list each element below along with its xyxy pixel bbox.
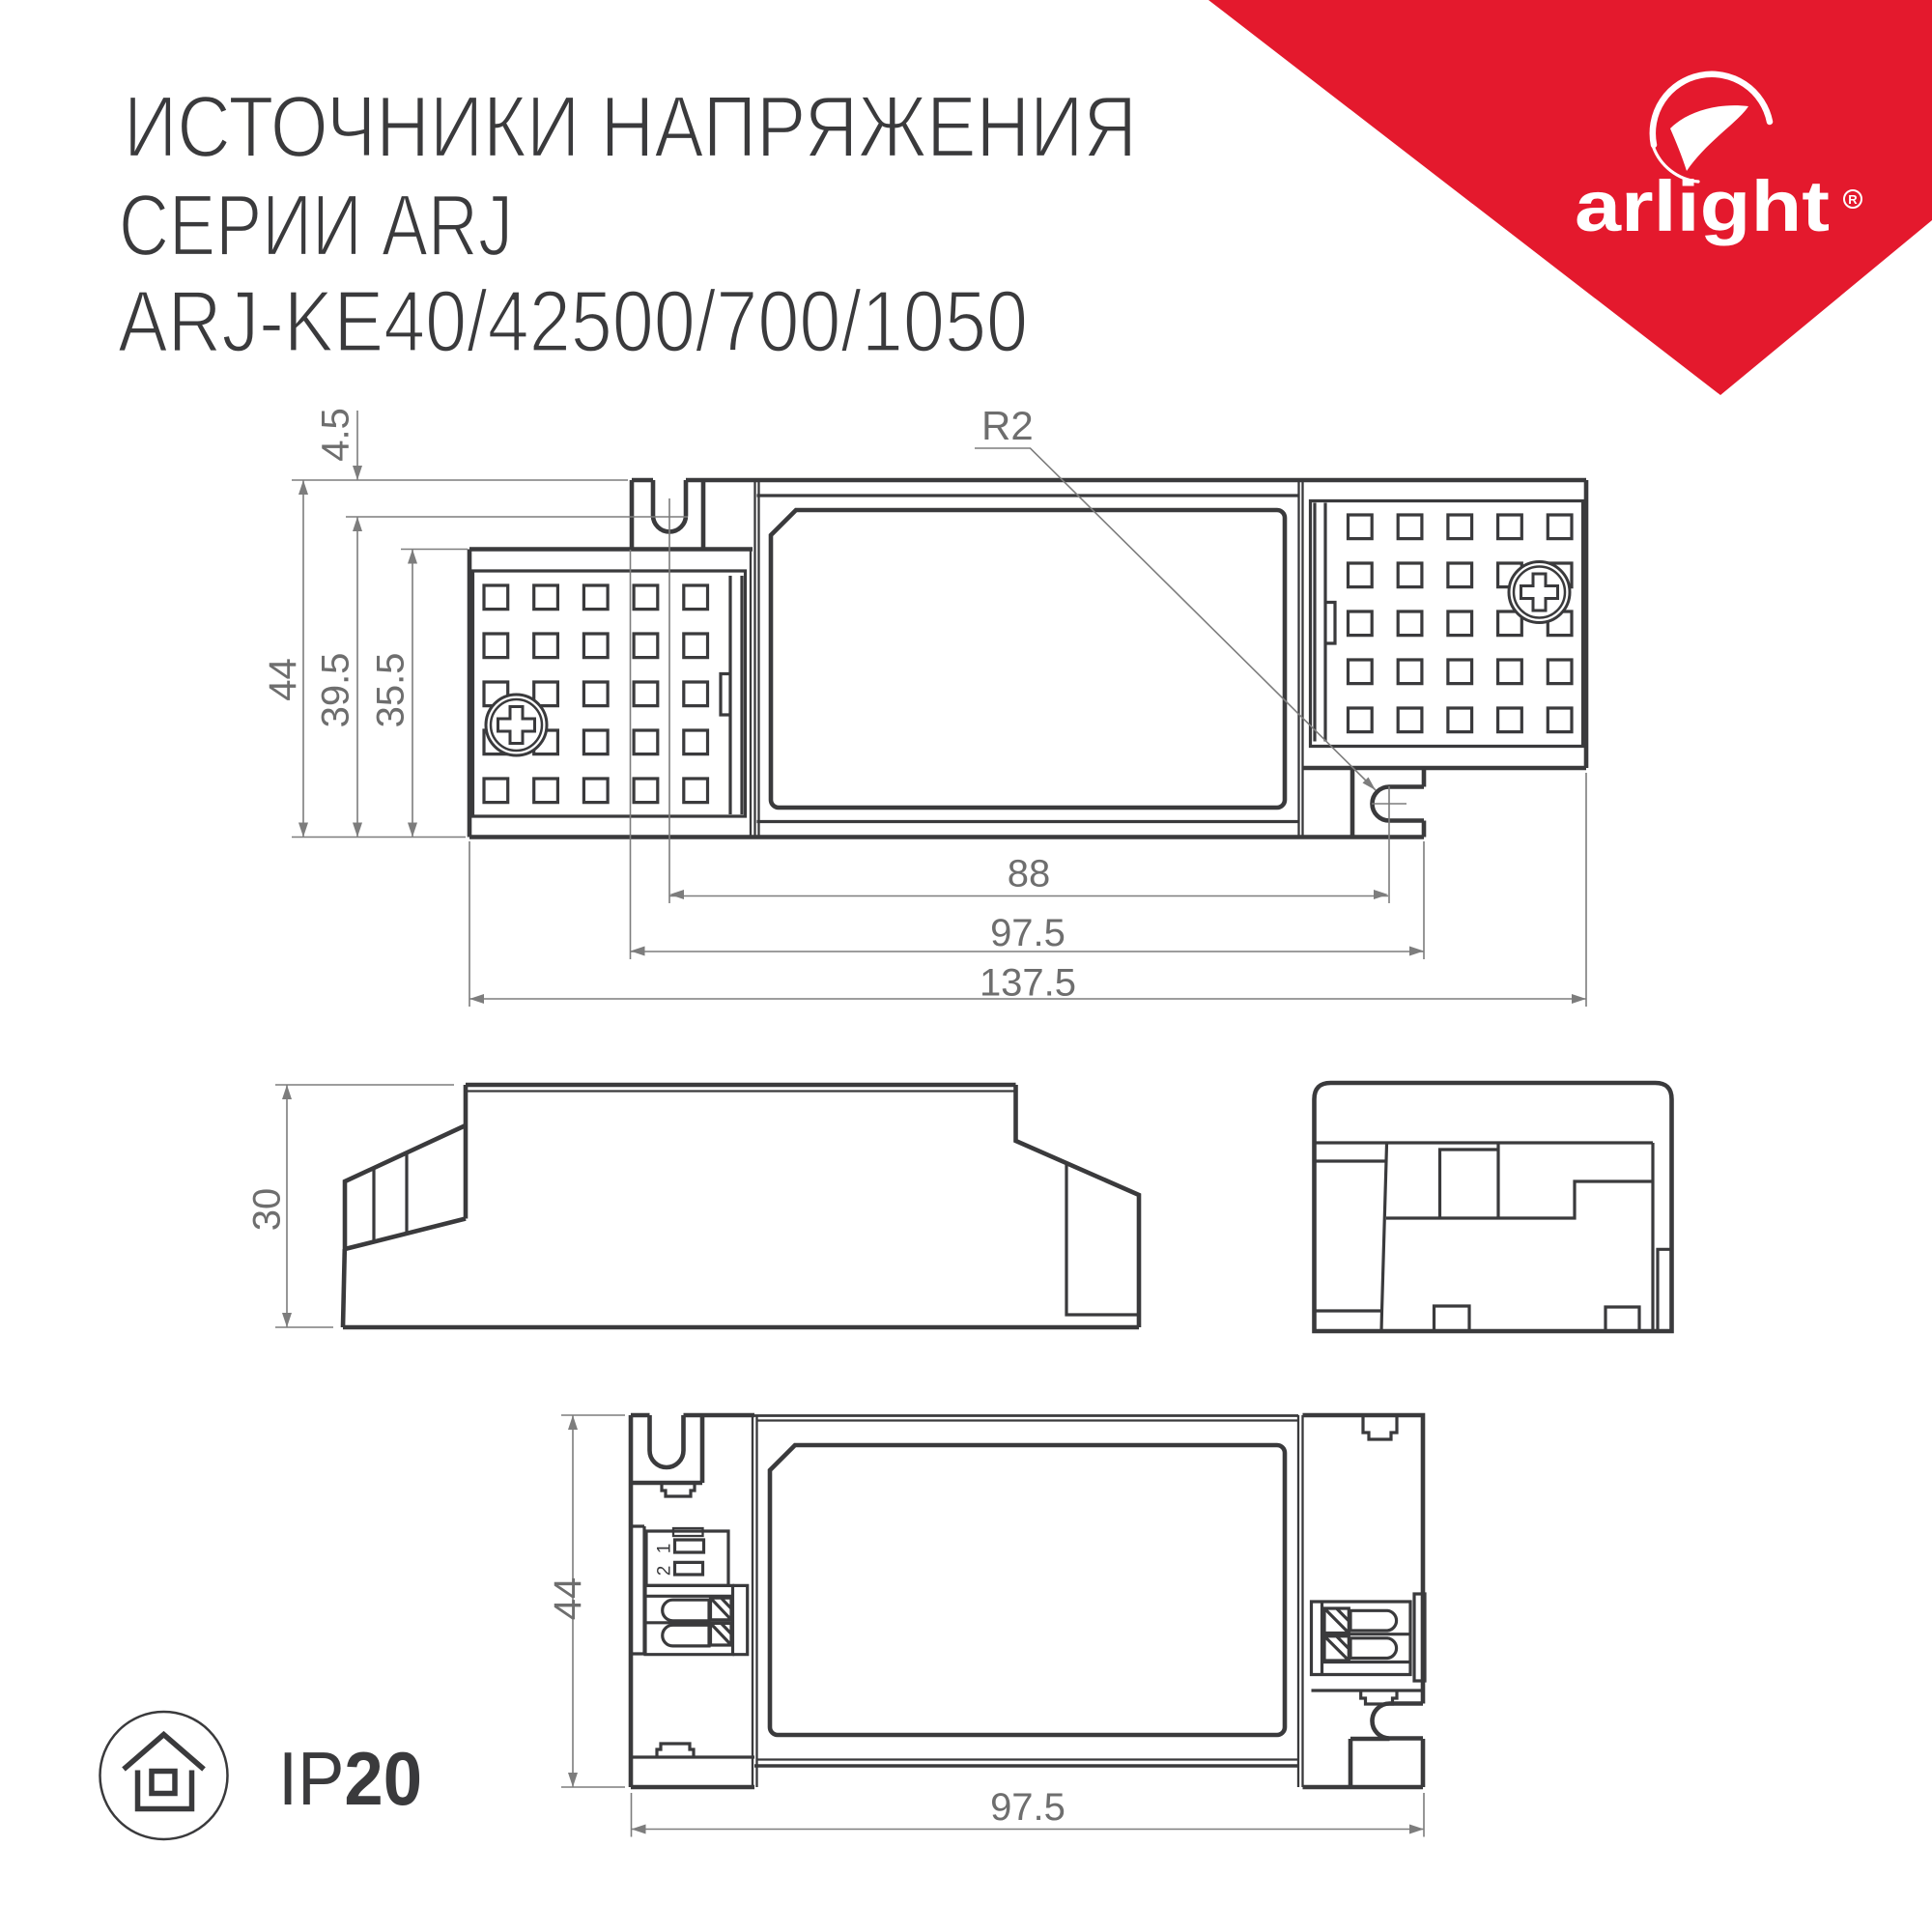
svg-text:ARJ-KE40/42500/700/1050: ARJ-KE40/42500/700/1050 xyxy=(118,274,1028,371)
svg-text:30: 30 xyxy=(246,1188,289,1232)
svg-text:97.5: 97.5 xyxy=(990,912,1065,954)
svg-text:4.5: 4.5 xyxy=(315,408,357,462)
svg-text:R: R xyxy=(1848,192,1858,207)
svg-text:ИСТОЧНИКИ НАПРЯЖЕНИЯ: ИСТОЧНИКИ НАПРЯЖЕНИЯ xyxy=(124,79,1137,176)
svg-text:44: 44 xyxy=(262,658,304,701)
svg-text:97.5: 97.5 xyxy=(990,1786,1065,1829)
svg-text:44: 44 xyxy=(547,1577,589,1621)
svg-text:39.5: 39.5 xyxy=(315,653,357,728)
svg-text:88: 88 xyxy=(1008,853,1051,895)
svg-text:СЕРИИ ARJ: СЕРИИ ARJ xyxy=(119,178,513,274)
svg-text:IP20: IP20 xyxy=(278,1736,422,1821)
svg-text:R2: R2 xyxy=(981,403,1034,448)
svg-text:137.5: 137.5 xyxy=(980,962,1076,1005)
svg-text:1: 1 xyxy=(655,1544,675,1554)
svg-text:35.5: 35.5 xyxy=(370,653,412,728)
svg-text:arlight: arlight xyxy=(1575,166,1830,246)
svg-text:2: 2 xyxy=(655,1566,675,1577)
